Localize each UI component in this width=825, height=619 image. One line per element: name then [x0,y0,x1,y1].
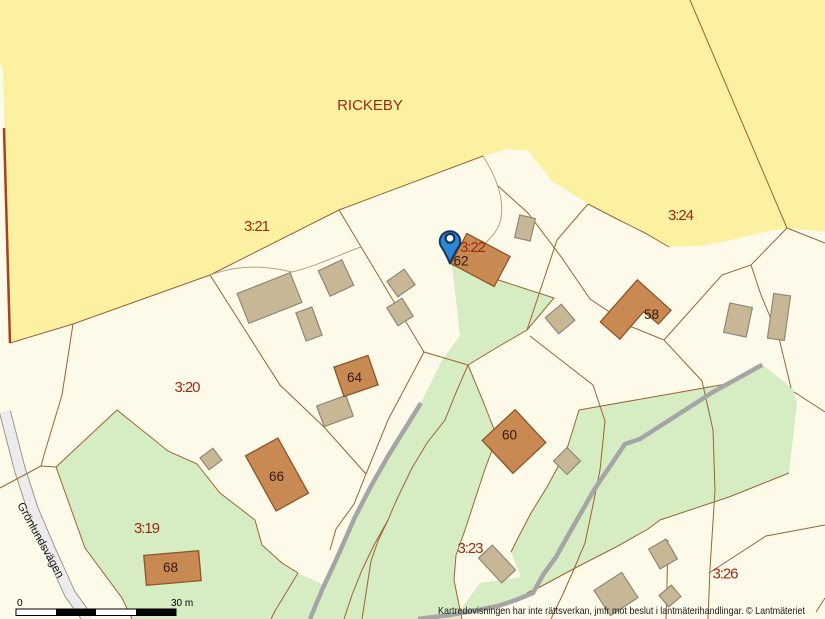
svg-text:64: 64 [347,370,363,385]
svg-text:30 m: 30 m [171,598,193,609]
svg-text:68: 68 [163,560,178,575]
svg-text:3:19: 3:19 [134,520,160,537]
svg-text:RICKEBY: RICKEBY [337,97,403,114]
svg-text:3:26: 3:26 [713,566,739,583]
svg-text:3:23: 3:23 [458,540,484,557]
svg-text:58: 58 [644,307,659,322]
svg-text:62: 62 [453,254,468,269]
svg-text:3:20: 3:20 [175,379,201,396]
svg-text:3:21: 3:21 [244,218,270,235]
svg-text:Kartredovisningen har inte rät: Kartredovisningen har inte rättsverkan, … [438,605,805,617]
svg-text:66: 66 [269,469,284,484]
svg-text:3:24: 3:24 [668,207,694,224]
svg-text:0: 0 [17,598,23,609]
svg-text:60: 60 [502,428,517,443]
